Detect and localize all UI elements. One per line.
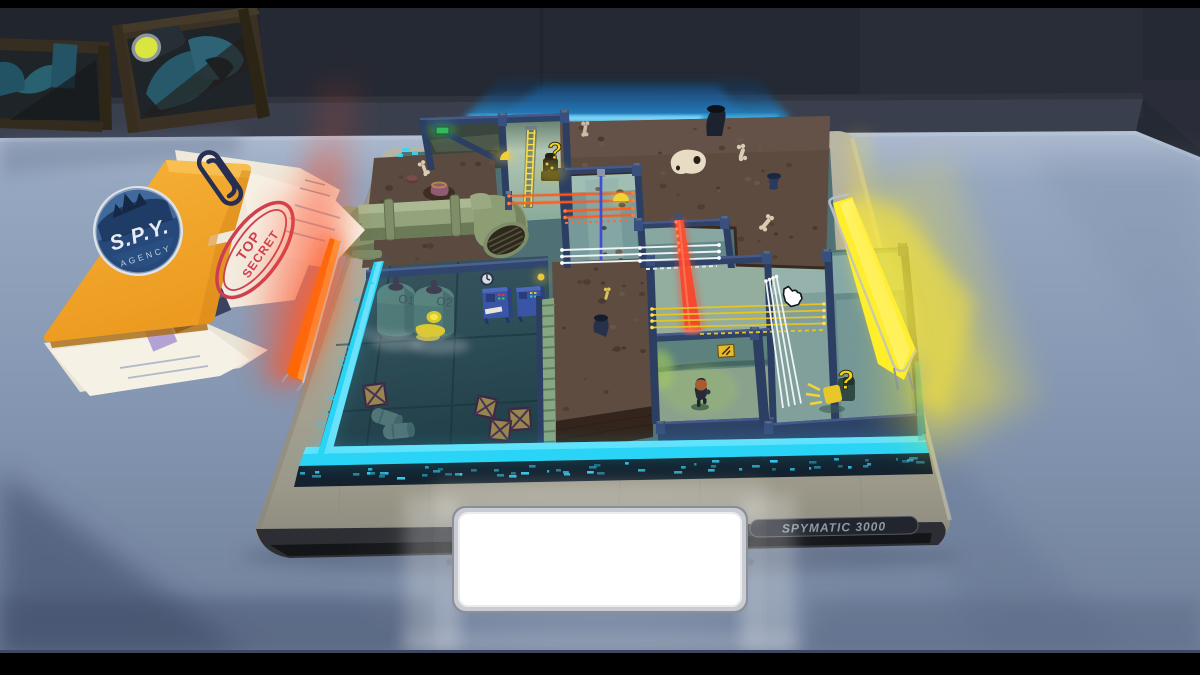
svg-text:?: ?	[838, 365, 855, 395]
svg-text:?: ?	[548, 138, 563, 165]
svg-text:O2: O2	[435, 294, 453, 310]
svg-text:O1: O1	[397, 292, 415, 308]
